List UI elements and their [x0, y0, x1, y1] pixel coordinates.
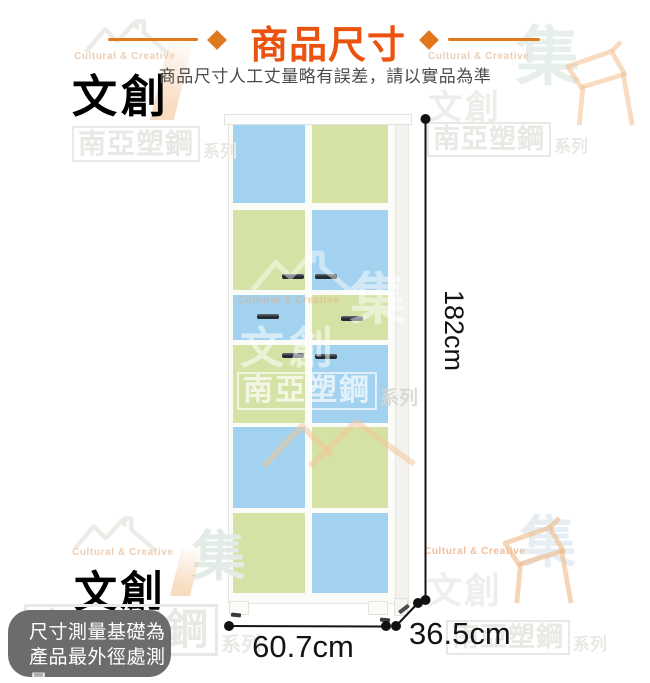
depth-dimension-label: 36.5cm	[409, 616, 511, 652]
door-handle-upper-left	[282, 274, 304, 279]
cabinet-side-panel	[394, 121, 409, 605]
width-dimension-label: 60.7cm	[237, 629, 369, 665]
measurement-note-badge: 尺寸測量基礎為 產品最外徑處測量	[8, 610, 171, 677]
wenchuang-watermark: 文創	[426, 562, 502, 614]
door-handle-middle-left	[257, 314, 279, 319]
series-suffix-watermark: 系列	[573, 636, 607, 655]
title-diamond-left-icon	[207, 30, 227, 50]
measurement-note-line2: 產品最外徑處測量	[29, 645, 171, 683]
door-panel	[233, 427, 305, 508]
width-dimension-line	[229, 626, 386, 627]
cultural-creative-watermark: Cultural & Creative	[424, 546, 525, 557]
wenchuang-watermark: 文創	[428, 80, 502, 129]
title-ornament-line-left	[108, 38, 198, 41]
door-handle-upper-right	[315, 274, 337, 279]
measurement-note-line1: 尺寸測量基礎為	[29, 620, 171, 645]
series-watermark: 南亞塑鋼 系列	[427, 122, 588, 157]
roof-watermark-icon	[84, 18, 172, 56]
door-panel	[312, 125, 388, 203]
orange-shard-watermark	[170, 548, 202, 596]
door-panel	[312, 427, 388, 508]
cabinet-leg-right	[368, 601, 388, 615]
chair-watermark-icon	[490, 516, 590, 608]
door-panel	[233, 513, 305, 593]
door-panel	[312, 513, 388, 593]
door-handle-middle-right	[341, 316, 363, 321]
series-watermark: 南亞塑鋼 系列	[72, 126, 237, 162]
cultural-creative-watermark: Cultural & Creative	[428, 51, 529, 62]
cabinet-top-board	[224, 114, 412, 125]
page-title: 商品尺寸	[238, 14, 418, 69]
door-handle-lower-left	[282, 353, 304, 358]
cabinet-foot-tip-left	[231, 612, 241, 617]
series-brand-watermark: 南亞塑鋼	[427, 122, 551, 157]
measurement-disclaimer: 商品尺寸人工丈量略有誤差，請以實品為準	[0, 62, 650, 87]
door-handle-lower-right	[315, 354, 337, 359]
ji-mark-watermark: 集	[520, 498, 576, 579]
height-dimension-label: 182cm	[438, 273, 469, 388]
title-diamond-right-icon	[419, 30, 439, 50]
cultural-creative-watermark: Cultural & Creative	[74, 51, 175, 62]
product-dimensions-infographic: Cultural & Creative 文創 南亞塑鋼 系列 集 Cultura…	[0, 0, 650, 683]
cultural-creative-watermark: Cultural & Creative	[72, 547, 173, 558]
series-suffix-watermark: 系列	[554, 138, 588, 157]
door-panel	[233, 125, 305, 203]
series-brand-watermark: 南亞塑鋼	[72, 126, 200, 162]
cabinet-foot-tip-right	[380, 617, 390, 622]
title-ornament-line-right	[448, 38, 540, 41]
roof-watermark-icon	[64, 516, 168, 552]
